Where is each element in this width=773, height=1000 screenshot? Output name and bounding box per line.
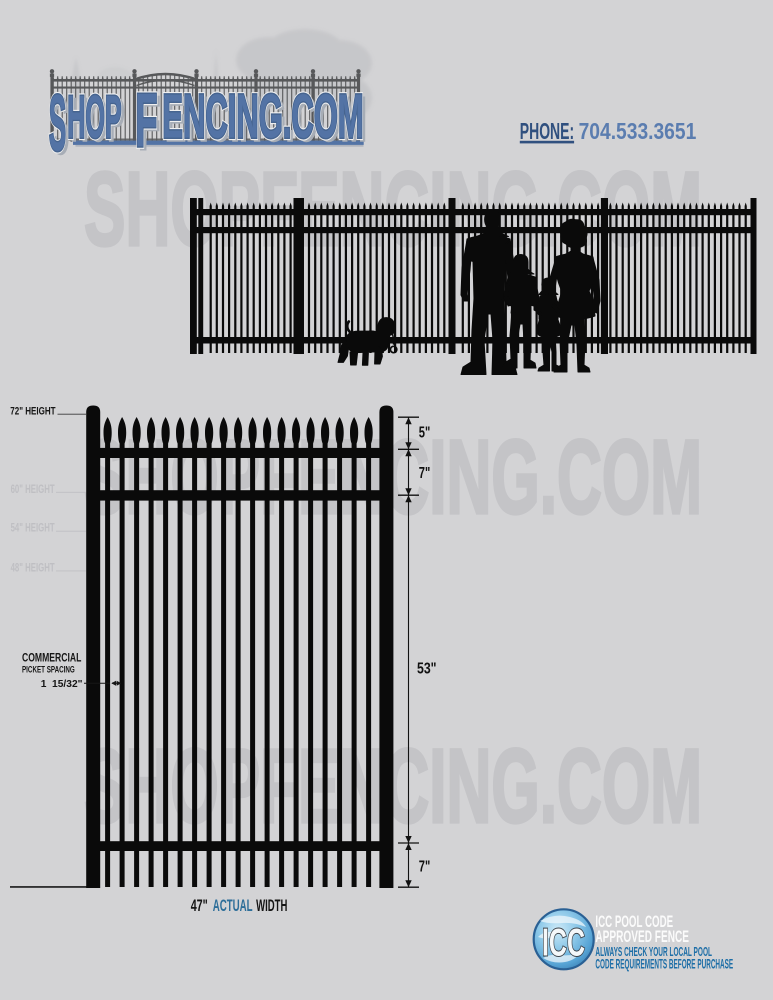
svg-text:60" HEIGHT: 60" HEIGHT xyxy=(11,482,55,496)
svg-text:ENCING.COM: ENCING.COM xyxy=(162,82,363,152)
svg-text:WIDTH: WIDTH xyxy=(256,897,287,915)
svg-text:ACTUAL: ACTUAL xyxy=(213,897,253,915)
svg-text:COMMERCIAL: COMMERCIAL xyxy=(22,651,81,665)
svg-text:F: F xyxy=(135,78,157,163)
svg-text:S: S xyxy=(49,78,66,167)
svg-text:PHONE:: PHONE: xyxy=(520,118,574,144)
svg-text:CODE REQUIREMENTS BEFORE PURCH: CODE REQUIREMENTS BEFORE PURCHASE xyxy=(595,956,733,971)
svg-text:7": 7" xyxy=(419,858,431,875)
svg-text:HOP: HOP xyxy=(67,84,121,151)
svg-text:1 15/32": 1 15/32" xyxy=(41,678,83,690)
svg-text:72" HEIGHT: 72" HEIGHT xyxy=(10,405,55,417)
svg-text:7": 7" xyxy=(419,465,431,482)
svg-text:ICC: ICC xyxy=(542,922,585,965)
svg-text:48" HEIGHT: 48" HEIGHT xyxy=(11,560,55,574)
svg-text:54" HEIGHT: 54" HEIGHT xyxy=(11,521,55,535)
svg-text:PICKET SPACING: PICKET SPACING xyxy=(22,665,75,675)
svg-text:704.533.3651: 704.533.3651 xyxy=(579,118,697,144)
svg-text:5": 5" xyxy=(419,425,431,442)
svg-text:47": 47" xyxy=(191,897,208,915)
svg-text:53": 53" xyxy=(417,660,437,677)
